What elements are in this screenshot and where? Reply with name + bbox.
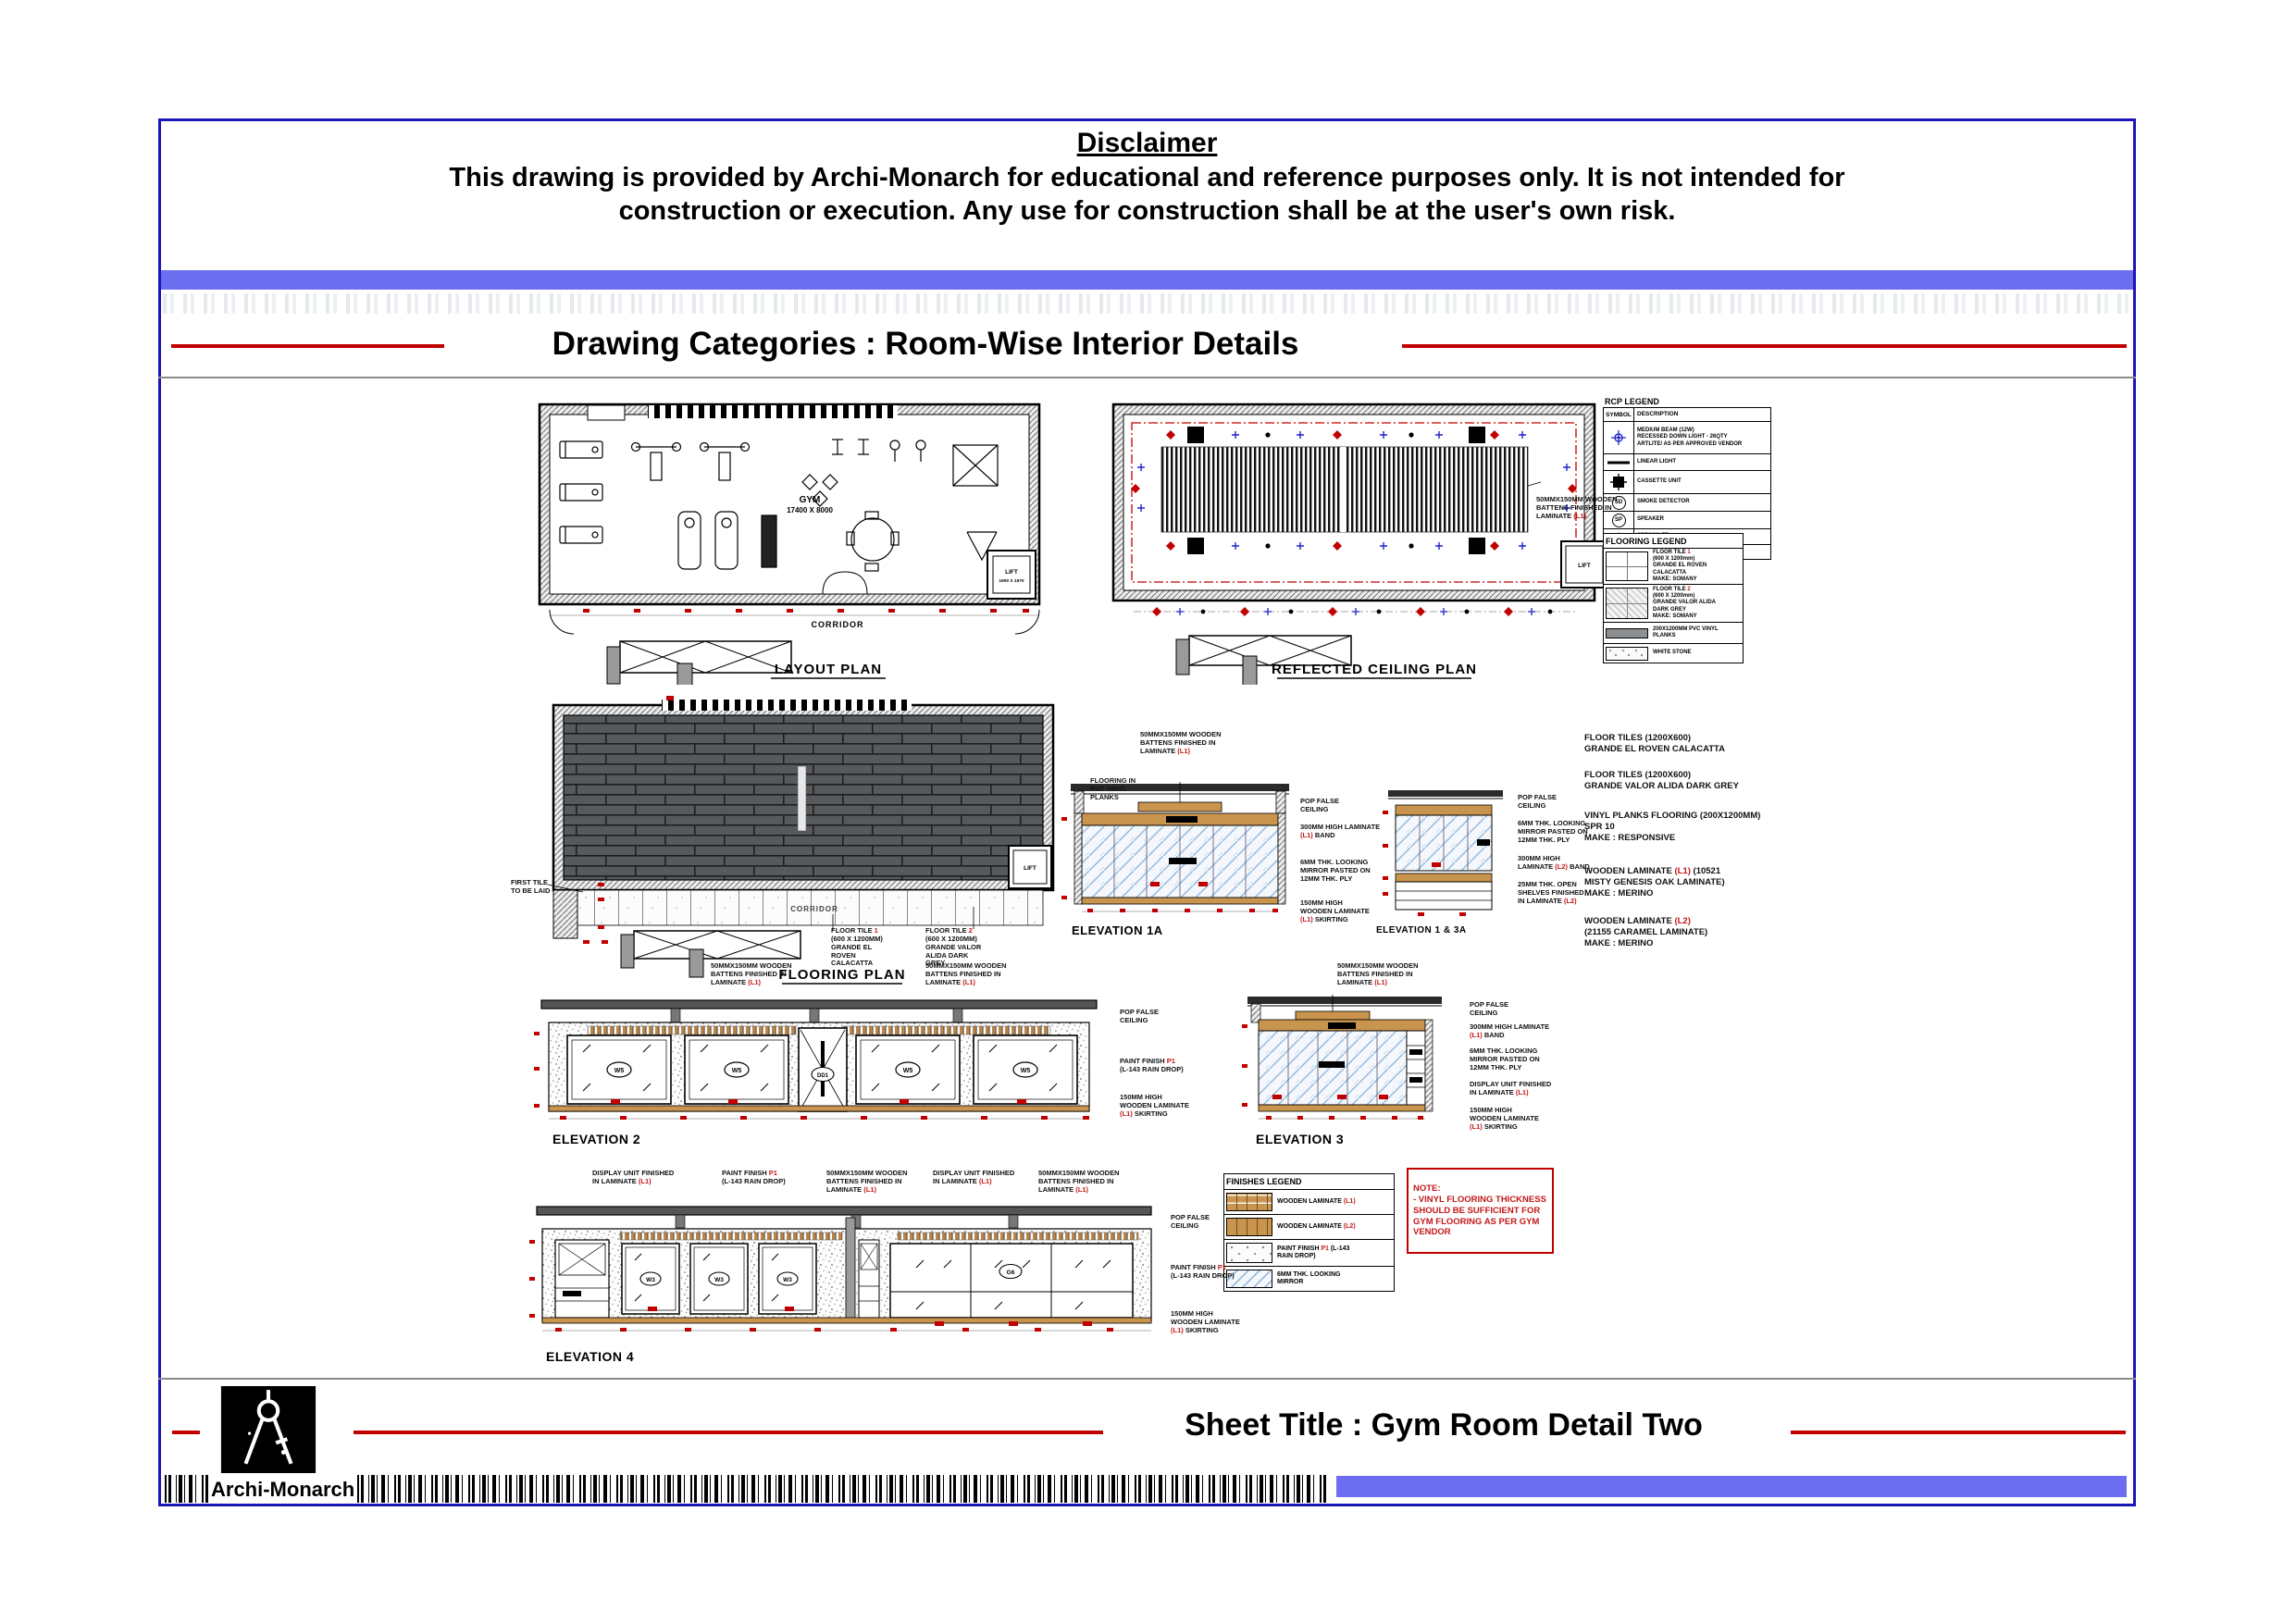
note-box-title: NOTE: [1413, 1183, 1441, 1194]
category-rule-right [1402, 344, 2127, 348]
flooring-legend: FLOORING LEGEND FLOOR TILE 1 (600 X 1200… [1603, 533, 1744, 663]
elevation-2-title: ELEVATION 2 [552, 1132, 640, 1146]
category-title: Drawing Categories : Room-Wise Interior … [389, 326, 1462, 363]
rcp-legend-col-desc: DESCRIPTION [1634, 409, 1681, 420]
lift-label: LIFT [1024, 865, 1036, 872]
material-note-floor-tile-1: FLOOR TILES (1200X600) GRANDE EL ROVEN C… [1584, 733, 1783, 755]
flooring-side-annotation: FLOORING IN PVC VINYL PLANKS [1090, 777, 1146, 802]
sheet-title: Sheet Title : Gym Room Detail Two [1064, 1407, 1823, 1443]
finishes-legend-desc: PAINT FINISH P1 (L-143 RAIN DROP) [1274, 1244, 1352, 1263]
elevation-3-title: ELEVATION 3 [1256, 1132, 1344, 1146]
wood-batten-board [1138, 802, 1222, 811]
display-unit-mid [859, 1240, 879, 1318]
elevation-1-3a-title: ELEVATION 1 & 3A [1376, 925, 1467, 935]
laminate-l1-swatch [1226, 1193, 1272, 1211]
svg-text:W5: W5 [614, 1068, 625, 1074]
lift-size-label: 1900 X 1970 [999, 578, 1024, 584]
open-shelves [1396, 882, 1492, 910]
watermark-strip [163, 293, 2130, 314]
reflected-ceiling-plan-drawing: LIFT REFLECTED CEILING PLAN [1106, 393, 1652, 685]
svg-text:W3: W3 [714, 1277, 724, 1283]
white-stone-swatch [1606, 647, 1648, 661]
compass-icon [220, 1386, 316, 1473]
glazing-g6: G6 [890, 1244, 1133, 1318]
batten-strip [842, 1026, 1050, 1035]
e13a-pop-annotation: POP FALSE CEILING [1518, 794, 1582, 811]
flooring-legend-desc: 200X1200MM PVC VINYL PLANKS [1650, 625, 1721, 641]
window-w5: W5 [567, 1035, 671, 1104]
e1a-pop-annotation: POP FALSE CEILING [1300, 798, 1384, 814]
finishes-legend-title: FINISHES LEGEND [1224, 1176, 1304, 1187]
e4-display-left-annotation: DISPLAY UNIT FINISHED IN LAMINATE (L1) [592, 1170, 694, 1186]
elevation-4-title: ELEVATION 4 [546, 1349, 634, 1364]
disclaimer-line-2: construction or execution. Any use for c… [158, 196, 2136, 227]
elevation-1a-drawing [1060, 782, 1296, 921]
lift-label: LIFT [1005, 569, 1018, 576]
drawing-sheet: Disclaimer This drawing is provided by A… [0, 0, 2296, 1623]
e4-battens-mid-annotation: 50MMX150MM WOODEN BATTENS FINISHED IN LA… [826, 1170, 924, 1195]
disclaimer-line-1: This drawing is provided by Archi-Monarc… [158, 163, 2136, 193]
header-blue-bar [161, 270, 2133, 290]
svg-text:W3: W3 [783, 1277, 792, 1283]
rcp-legend-title: RCP LEGEND [1603, 396, 1771, 407]
floor-tile-2-swatch [1606, 588, 1648, 619]
svg-text:DD1: DD1 [817, 1073, 829, 1079]
dimension-ticks [583, 609, 1029, 613]
vinyl-planks-swatch [1606, 628, 1648, 638]
e1a-skirting-annotation: 150MM HIGH WOODEN LAMINATE (L1) SKIRTING [1300, 899, 1384, 924]
e2-battens-left-annotation: 50MMX150MM WOODEN BATTENS FINISHED IN LA… [711, 962, 822, 987]
floor-tile-1-annotation: FLOOR TILE 1 (600 X 1200MM) GRANDE EL RO… [831, 927, 896, 968]
e2-battens-right-annotation: 50MMX150MM WOODEN BATTENS FINISHED IN LA… [925, 962, 1036, 987]
gym-room-size-label: 17400 X 8000 [787, 506, 833, 514]
e13a-shelves-annotation: 25MM THK. OPEN SHELVES FINISHED IN LAMIN… [1518, 881, 1592, 906]
svg-text:W5: W5 [732, 1068, 742, 1074]
window-w5: W5 [974, 1035, 1077, 1104]
wood-batten-board [1296, 1011, 1370, 1020]
first-tile-annotation: FIRST TILE TO BE LAID [511, 879, 566, 896]
paint-p1-swatch [1226, 1243, 1272, 1263]
e13a-mirror-annotation: 6MM THK. LOOKING MIRROR PASTED ON 12MM T… [1518, 820, 1592, 845]
material-note-floor-tile-2: FLOOR TILES (1200X600) GRANDE VALOR ALID… [1584, 770, 1783, 792]
disclaimer-title: Disclaimer [158, 128, 2136, 159]
footer-divider [158, 1378, 2136, 1380]
material-note-laminate-l2: WOODEN LAMINATE (L2) (21155 CARAMEL LAMI… [1584, 916, 1783, 949]
svg-text:G6: G6 [1007, 1270, 1015, 1276]
batten-strip [898, 1233, 1138, 1240]
layout-plan-title: LAYOUT PLAN [775, 662, 882, 677]
shelf-band [1396, 873, 1492, 882]
elevation-2-drawing: W5 W5 DD1 W5 W5 [532, 995, 1113, 1126]
rcp-batten-annotation: 50MMX150MM WOODEN BATTENS FINISHED IN LA… [1536, 488, 1620, 520]
flooring-legend-desc: WHITE STONE [1650, 648, 1694, 658]
stair-block [1176, 636, 1351, 685]
linear-light-icon [1604, 454, 1634, 470]
barcode-main [357, 1475, 1331, 1503]
footer-blue-bar [1336, 1476, 2127, 1497]
lift-label: LIFT [1578, 563, 1591, 569]
skirting [1259, 1105, 1425, 1111]
batten-strip [620, 1233, 842, 1240]
flooring-legend-desc: FLOOR TILE 1 (600 X 1200mm) GRANDE EL RO… [1650, 548, 1709, 585]
svg-text:W3: W3 [646, 1277, 655, 1283]
e4-paint-top-annotation: PAINT FINISH P1 (L-143 RAIN DROP) [722, 1170, 805, 1186]
elevation-4-drawing: W3 W3 W3 [527, 1203, 1164, 1344]
elevation-3-drawing [1240, 995, 1462, 1126]
lift-box: LIFT 1900 X 1970 [987, 551, 1036, 599]
floor-tile-1-swatch [1606, 551, 1648, 581]
e3-pop-annotation: POP FALSE CEILING [1470, 1001, 1534, 1018]
elevation-1-3a-drawing [1381, 788, 1510, 918]
window-w5: W5 [685, 1035, 788, 1104]
svg-text:W5: W5 [1021, 1068, 1031, 1074]
e1a-mirror-annotation: 6MM THK. LOOKING MIRROR PASTED ON 12MM T… [1300, 859, 1384, 884]
skirting [542, 1318, 1151, 1323]
svg-text:W5: W5 [903, 1068, 913, 1074]
archi-monarch-logo [220, 1386, 316, 1473]
corridor-label: CORRIDOR [790, 905, 838, 913]
rcp-legend-col-symbol: SYMBOL [1604, 408, 1634, 421]
door-dd1: DD1 [799, 1028, 847, 1111]
e3-display-annotation: DISPLAY UNIT FINISHED IN LAMINATE (L1) [1470, 1081, 1558, 1097]
footer-rule-right [1791, 1431, 2126, 1434]
window-w5: W5 [856, 1035, 960, 1104]
skirting [549, 1106, 1089, 1111]
footer-rule-dash [172, 1431, 200, 1434]
rcp-legend-desc: MEDIUM BEAM (12W) RECESSED DOWN LIGHT - … [1634, 426, 1744, 450]
e3-skirting-annotation: 150MM HIGH WOODEN LAMINATE (L1) SKIRTING [1470, 1107, 1553, 1132]
e4-paint-right-annotation: PAINT FINISH P1 (L-143 RAIN DROP) [1171, 1264, 1254, 1281]
e3-mirror-annotation: 6MM THK. LOOKING MIRROR PASTED ON 12MM T… [1470, 1047, 1553, 1072]
laminate-band [1396, 805, 1492, 815]
e1a-band-annotation: 300MM HIGH LAMINATE (L1) BAND [1300, 824, 1388, 840]
skirting [1082, 898, 1278, 904]
layout-plan-drawing: GYM 17400 X 8000 CORRIDOR LIFT 1900 X 19… [532, 393, 1060, 685]
e13a-band-annotation: 300MM HIGH LAMINATE (L2) BAND [1518, 855, 1592, 872]
rcp-legend-desc: SMOKE DETECTOR [1634, 497, 1693, 507]
e4-pop-annotation: POP FALSE CEILING [1171, 1214, 1245, 1231]
header-divider [158, 377, 2136, 378]
flooring-legend-desc: FLOOR TILE 2 (600 X 1200mm) GRANDE VALOR… [1650, 585, 1719, 622]
elevation-1a-title: ELEVATION 1A [1072, 923, 1163, 937]
e4-skirting-annotation: 150MM HIGH WOODEN LAMINATE (L1) SKIRTING [1171, 1310, 1254, 1335]
display-unit-left [555, 1240, 609, 1318]
gym-room-label: GYM [800, 495, 821, 505]
rcp-title: REFLECTED CEILING PLAN [1272, 662, 1477, 677]
e3-band-annotation: 300MM HIGH LAMINATE (L1) BAND [1470, 1023, 1558, 1040]
material-note-vinyl: VINYL PLANKS FLOORING (200X1200MM) SPR 1… [1584, 811, 1783, 844]
equipment-rack-band [648, 405, 898, 418]
brand-name: Archi-Monarch [211, 1478, 354, 1502]
stair-block [607, 641, 791, 685]
e2-skirting-annotation: 150MM HIGH WOODEN LAMINATE (L1) SKIRTING [1120, 1094, 1203, 1119]
note-box: NOTE: - VINYL FLOORING THICKNESS SHOULD … [1407, 1168, 1554, 1254]
window-w3: W3 [690, 1244, 748, 1314]
finishes-legend-desc: WOODEN LAMINATE (L2) [1274, 1221, 1359, 1233]
footer-rule-left [354, 1431, 1103, 1434]
e4-display-right-annotation: DISPLAY UNIT FINISHED IN LAMINATE (L1) [933, 1170, 1030, 1186]
e1a-battens-annotation: 50MMX150MM WOODEN BATTENS FINISHED IN LA… [1140, 731, 1251, 756]
display-unit [1407, 1031, 1425, 1105]
downlight-icon [1604, 422, 1634, 453]
e2-paint-annotation: PAINT FINISH P1 (L-143 RAIN DROP) [1120, 1058, 1203, 1074]
rcp-legend-desc: SPEAKER [1634, 514, 1667, 525]
material-note-laminate-l1: WOODEN LAMINATE (L1) (10521 MISTY GENESI… [1584, 866, 1783, 899]
corridor-label: CORRIDOR [812, 620, 864, 629]
flooring-plan-drawing: CORRIDOR LIFT FLOORING PLAN [546, 692, 1083, 990]
finishes-legend-desc: 6MM THK. LOOKING MIRROR [1274, 1270, 1343, 1289]
note-box-body: - VINYL FLOORING THICKNESS SHOULD BE SUF… [1413, 1195, 1547, 1239]
rcp-legend-desc: CASSETTE UNIT [1634, 477, 1684, 487]
lift-box: LIFT [1009, 846, 1051, 888]
e3-battens-annotation: 50MMX150MM WOODEN BATTENS FINISHED IN LA… [1337, 962, 1448, 987]
lift-box: LIFT [1561, 541, 1607, 588]
rcp-legend-desc: LINEAR LIGHT [1634, 457, 1679, 467]
flooring-legend-title: FLOORING LEGEND [1604, 536, 1689, 547]
window-w3: W3 [622, 1244, 679, 1314]
finishes-legend-desc: WOODEN LAMINATE (L1) [1274, 1196, 1359, 1208]
window-w3: W3 [759, 1244, 816, 1314]
e2-pop-annotation: POP FALSE CEILING [1120, 1009, 1194, 1025]
barcode-left [165, 1475, 211, 1503]
batten-strip [588, 1026, 796, 1035]
e4-battens-right-annotation: 50MMX150MM WOODEN BATTENS FINISHED IN LA… [1038, 1170, 1136, 1195]
